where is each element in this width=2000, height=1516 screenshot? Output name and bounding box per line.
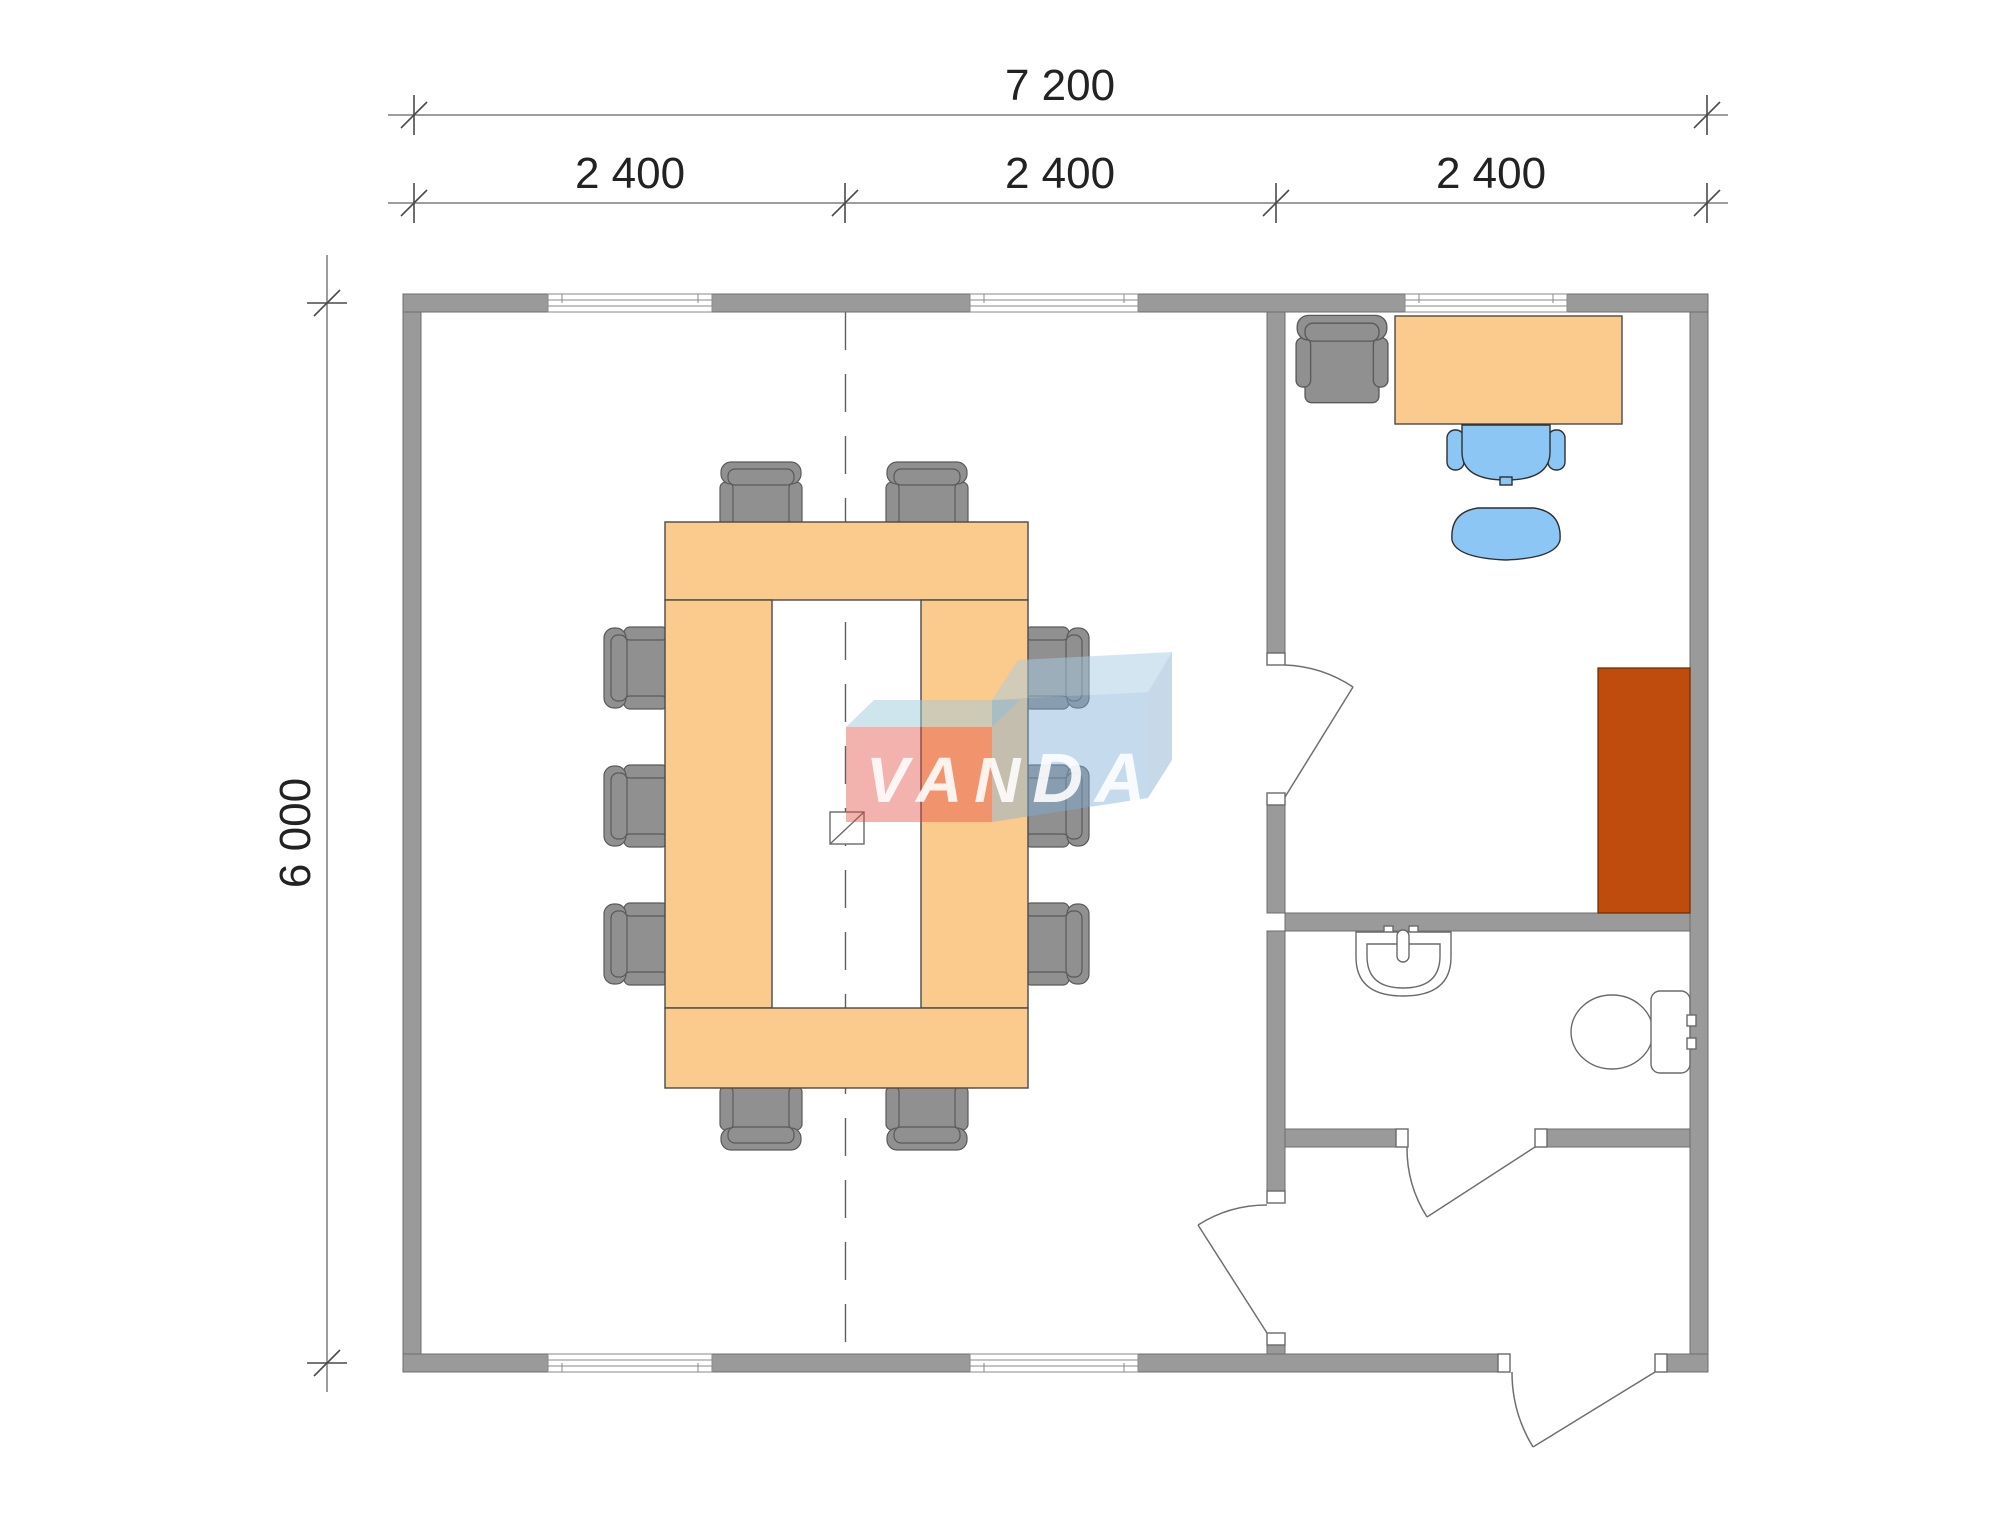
conference-table-left-segment — [665, 600, 772, 1008]
cabinet-rust — [1598, 668, 1690, 913]
interior-wall-vertical — [1267, 1345, 1285, 1354]
door-jamb — [1267, 793, 1285, 805]
exterior-wall-bottom — [1138, 1354, 1498, 1372]
door-jamb — [1267, 1333, 1285, 1345]
window — [970, 294, 1138, 312]
sink-faucet — [1397, 930, 1409, 962]
interior-wall-bathroom-entry — [1547, 1129, 1690, 1147]
dim-label-total-height: 6 000 — [271, 778, 320, 888]
floor-plan-page: VANDA 7 200 2 400 2 400 2 400 6 000 — [0, 0, 2000, 1516]
dim-label-module-3: 2 400 — [1436, 149, 1546, 198]
office-armchair — [1296, 315, 1388, 402]
window — [548, 294, 712, 312]
bathroom-sink — [1356, 926, 1451, 996]
door-jamb — [1267, 1191, 1285, 1203]
office-chair-seat — [1462, 425, 1550, 480]
toilet — [1571, 991, 1696, 1073]
window — [970, 1354, 1138, 1372]
toilet-button — [1687, 1038, 1696, 1049]
dim-label-total-width: 7 200 — [1005, 61, 1115, 110]
office-chair-backrest — [1452, 508, 1560, 560]
window — [1405, 294, 1567, 312]
exterior-wall-right — [1690, 294, 1708, 1372]
door-jamb — [1535, 1129, 1547, 1147]
exterior-wall-bottom — [403, 1354, 548, 1372]
dim-label-module-2: 2 400 — [1005, 149, 1115, 198]
exterior-wall-top — [1567, 294, 1708, 312]
exterior-wall-bottom — [712, 1354, 970, 1372]
toilet-tank — [1651, 991, 1690, 1073]
interior-wall-bathroom-entry — [1285, 1129, 1396, 1147]
conference-table-bottom-segment — [665, 1008, 1028, 1088]
vanda-logo-watermark: VANDA — [846, 652, 1172, 822]
exterior-wall-top — [1138, 294, 1405, 312]
office-desk — [1395, 316, 1622, 424]
floor-plan-canvas: VANDA 7 200 2 400 2 400 2 400 6 000 — [0, 0, 2000, 1516]
door-jamb — [1267, 653, 1285, 665]
conference-table-top-segment — [665, 522, 1028, 600]
door-jamb — [1396, 1129, 1408, 1147]
exterior-wall-bottom — [1667, 1354, 1708, 1372]
exterior-wall-left — [403, 294, 421, 1372]
office-chair-connector — [1500, 477, 1512, 485]
logo-text: VANDA — [866, 739, 1157, 817]
window — [548, 1354, 712, 1372]
office-chair-blue — [1447, 425, 1565, 560]
exterior-wall-top — [712, 294, 970, 312]
door-jamb — [1655, 1354, 1667, 1372]
interior-wall-office-bathroom — [1285, 913, 1690, 931]
office-door — [1285, 665, 1353, 797]
entrance-door — [1512, 1372, 1655, 1447]
toilet-button — [1687, 1015, 1696, 1026]
door-jamb — [1498, 1354, 1510, 1372]
bathroom-door — [1407, 1147, 1535, 1217]
entry-to-meeting-door — [1198, 1205, 1267, 1333]
toilet-bowl — [1571, 995, 1653, 1069]
dim-label-module-1: 2 400 — [575, 149, 685, 198]
interior-wall-vertical — [1267, 805, 1285, 913]
exterior-wall-top — [403, 294, 548, 312]
interior-wall-vertical — [1267, 312, 1285, 653]
interior-wall-vertical — [1267, 931, 1285, 1191]
